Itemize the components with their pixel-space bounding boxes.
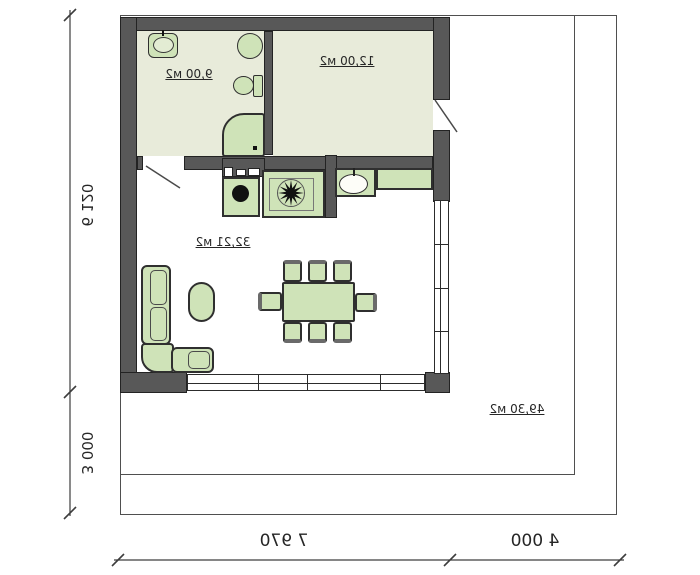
plan-linework: [0, 0, 700, 575]
dim-side-plot-width: 4 000: [485, 531, 585, 551]
entry-door-swing: [435, 100, 457, 132]
dim-house-width: 7 970: [234, 531, 334, 551]
dim-front-plot-depth: 3 000: [78, 403, 96, 503]
bedroom-area-label: 12,00 м2: [302, 54, 392, 68]
floor-plan-canvas: 9,00 м2 12,00 м2 32,21 м2 49,30 м2 6 120…: [0, 0, 700, 575]
bathroom-door-swing: [146, 166, 180, 188]
terrace-area-label: 49,30 м2: [472, 402, 562, 416]
living-room-area-label: 32,21 м2: [178, 235, 268, 249]
stove-burner-icon: [278, 180, 305, 207]
bathroom-area-label: 9,00 м2: [144, 67, 234, 81]
dim-house-depth: 6 120: [78, 155, 96, 255]
